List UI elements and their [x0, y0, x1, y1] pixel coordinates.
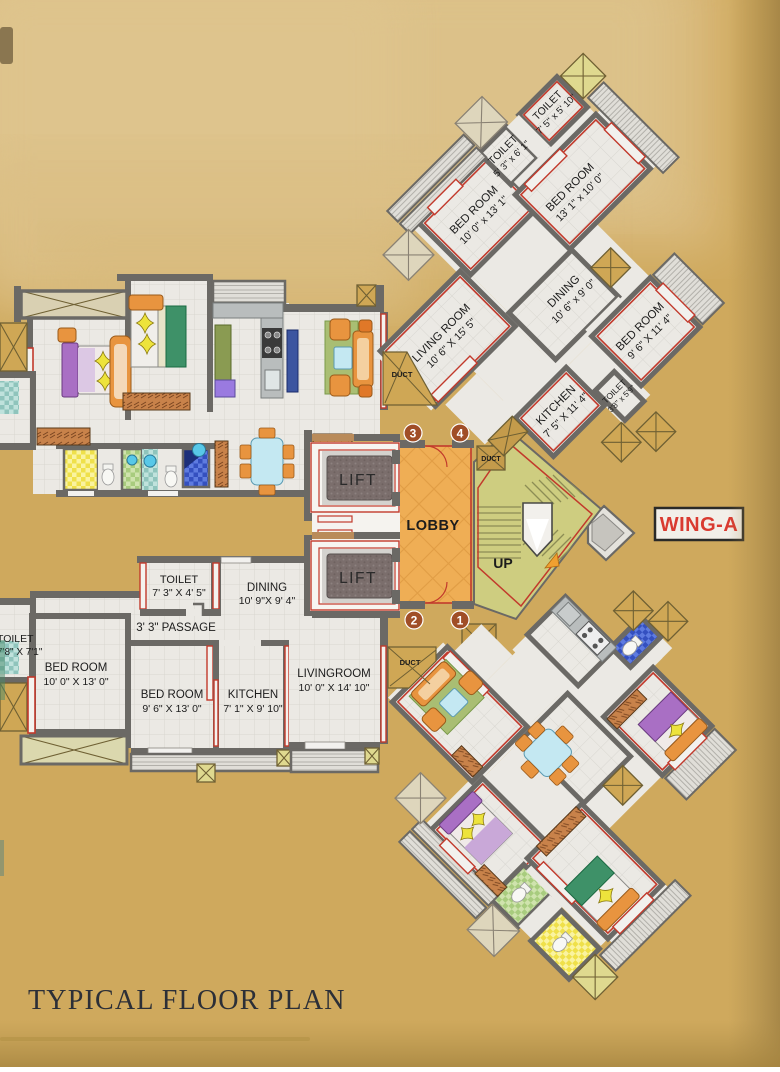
- svg-text:TYPICAL FLOOR PLAN: TYPICAL FLOOR PLAN: [28, 985, 346, 1016]
- svg-text:9' 6" X 13' 0": 9' 6" X 13' 0": [142, 703, 202, 715]
- svg-text:BED ROOM: BED ROOM: [141, 689, 204, 701]
- svg-text:WING-A: WING-A: [660, 514, 739, 536]
- svg-text:DUCT: DUCT: [481, 456, 501, 463]
- svg-text:TOILET: TOILET: [160, 574, 199, 586]
- svg-text:TOILET: TOILET: [0, 633, 34, 645]
- svg-text:UP: UP: [493, 555, 512, 571]
- svg-text:3: 3: [410, 427, 417, 441]
- svg-text:7'8" X 7'1": 7'8" X 7'1": [0, 647, 43, 658]
- svg-text:DUCT: DUCT: [392, 370, 413, 379]
- svg-text:3' 3" PASSAGE: 3' 3" PASSAGE: [136, 622, 216, 634]
- svg-text:DUCT: DUCT: [400, 658, 421, 667]
- svg-text:BED ROOM: BED ROOM: [45, 662, 108, 674]
- svg-text:10' 0" X 14' 10": 10' 0" X 14' 10": [298, 682, 369, 694]
- svg-text:LIFT: LIFT: [339, 570, 377, 587]
- svg-text:10' 0" X 13' 0": 10' 0" X 13' 0": [43, 676, 108, 688]
- svg-text:LIFT: LIFT: [339, 472, 377, 489]
- svg-text:1: 1: [457, 614, 464, 628]
- svg-text:7' 1" X 9' 10": 7' 1" X 9' 10": [223, 703, 283, 715]
- svg-text:2: 2: [411, 614, 418, 628]
- svg-text:KITCHEN: KITCHEN: [228, 689, 278, 701]
- svg-text:DINING: DINING: [247, 582, 287, 594]
- svg-text:10' 9"X 9' 4": 10' 9"X 9' 4": [239, 595, 296, 607]
- svg-text:LIVINGROOM: LIVINGROOM: [297, 668, 370, 680]
- svg-text:4: 4: [457, 427, 464, 441]
- svg-text:7' 3" X 4' 5": 7' 3" X 4' 5": [152, 587, 206, 599]
- svg-text:LOBBY: LOBBY: [406, 518, 459, 534]
